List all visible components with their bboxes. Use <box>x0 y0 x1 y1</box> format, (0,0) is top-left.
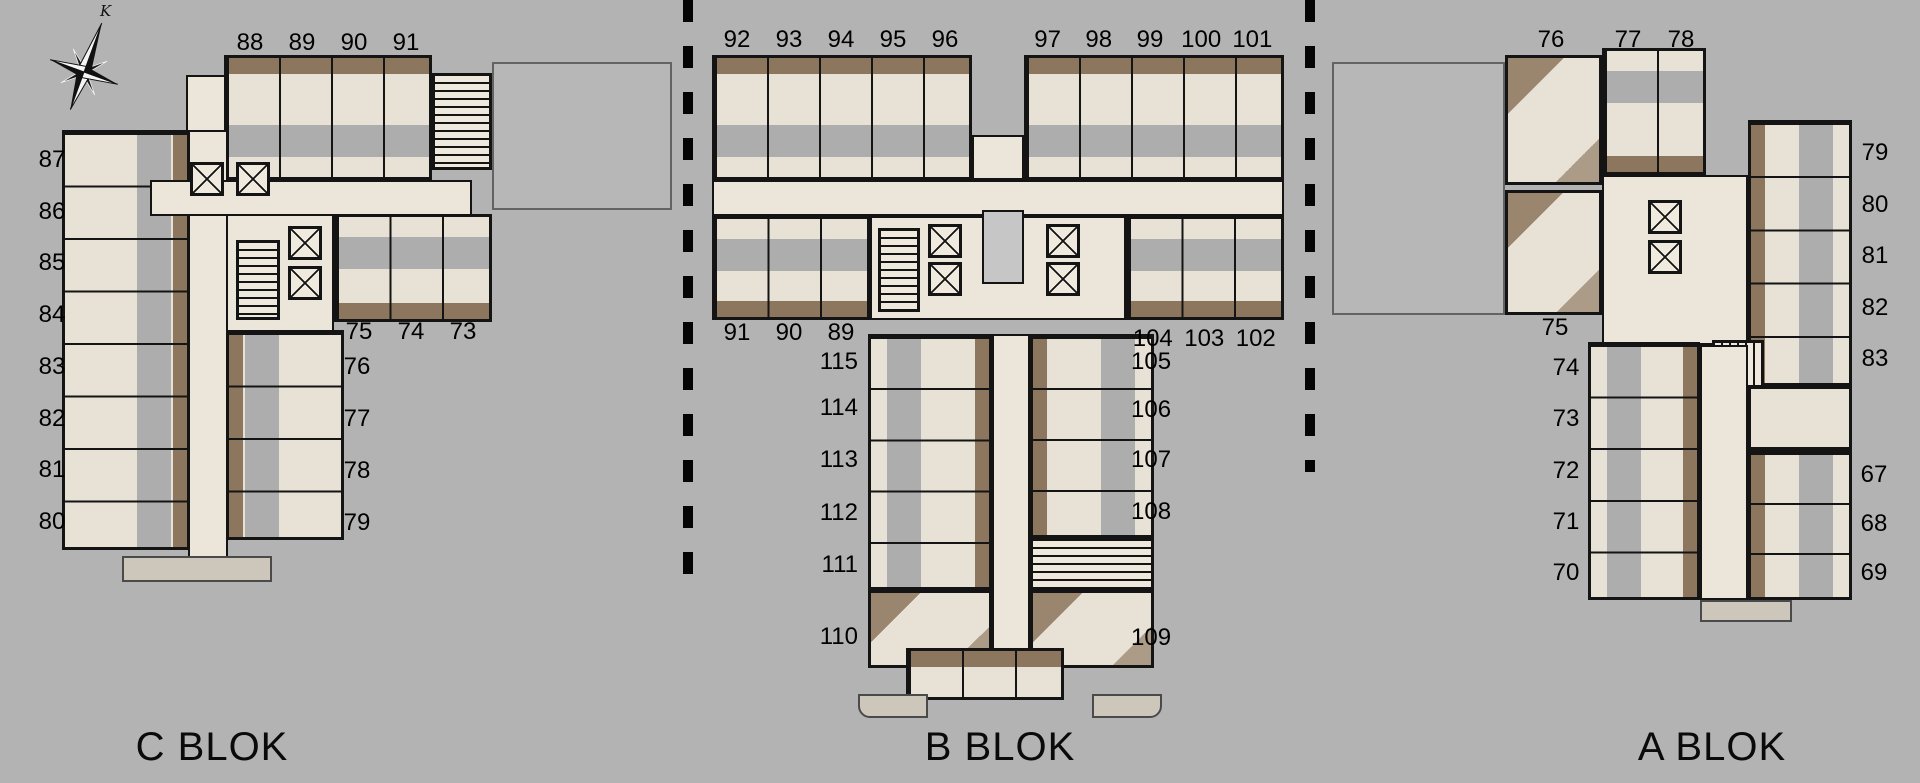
room-number-label: 109 <box>1131 623 1191 653</box>
room-number-label: 89 <box>276 28 328 58</box>
a-blok-left-room-numbers: 7473727170 <box>1542 353 1590 588</box>
room-number-label: 78 <box>333 456 381 486</box>
c-right-rooms <box>226 330 344 540</box>
room-number-label: 73 <box>1542 404 1590 434</box>
b-shaft-void <box>982 210 1024 284</box>
room-number-label: 98 <box>1073 25 1124 55</box>
b-blok-stem-right-room-numbers: 105106107108109 <box>1131 347 1191 653</box>
room-number-label: 107 <box>1131 445 1191 475</box>
c-balcony <box>122 556 272 582</box>
b-balcony-right <box>1092 694 1162 718</box>
a-right-lower-rooms <box>1748 450 1852 600</box>
block-separator-left <box>683 0 693 578</box>
room-number-label: 81 <box>28 455 76 485</box>
a-empty-parcel <box>1332 62 1505 315</box>
compass-rose-icon: K <box>24 0 144 130</box>
c-elevator-4-icon <box>288 266 322 300</box>
a-suite-76 <box>1505 55 1602 185</box>
room-number-label: 91 <box>380 28 432 58</box>
room-number-label: 108 <box>1131 497 1191 527</box>
b-stem-corridor <box>992 334 1030 668</box>
b-elevator-3-icon <box>1046 224 1080 258</box>
c-elevator-2-icon <box>236 162 270 196</box>
room-number-label: 71 <box>1542 507 1590 537</box>
room-number-label: 97 <box>1022 25 1073 55</box>
room-number-label: 96 <box>919 25 971 55</box>
b-annex-rooms <box>906 648 1064 700</box>
a-corridor-vertical <box>1700 345 1748 600</box>
room-number-label: 90 <box>763 318 815 348</box>
room-number-label: 106 <box>1131 395 1191 425</box>
a-top-rooms <box>1602 48 1706 175</box>
room-number-label: 114 <box>802 393 858 423</box>
a-blok-right-lower-room-numbers: 676869 <box>1850 460 1898 588</box>
c-blok-inner-room-numbers: 757473 <box>333 317 489 347</box>
block-separator-right <box>1305 0 1315 472</box>
room-number-label: 91 <box>711 318 763 348</box>
room-number-label: 102 <box>1230 324 1282 354</box>
room-number-label: 85 <box>28 248 76 278</box>
room-number-label: 82 <box>1851 293 1899 323</box>
a-blok-top-room-numbers: 767778 <box>1525 25 1707 55</box>
room-number-label: 75 <box>333 317 385 347</box>
b-blok-top-right-room-numbers: 979899100101 <box>1022 25 1278 55</box>
room-number-label: 79 <box>1851 138 1899 168</box>
b-blok-stem-left-room-numbers: 115114113112111110 <box>802 347 858 652</box>
c-stairwell-core <box>236 240 280 320</box>
a-elevator-1-icon <box>1648 200 1682 234</box>
c-blok-top-room-numbers: 88899091 <box>224 28 432 58</box>
room-number-label: 82 <box>28 404 76 434</box>
a-elevator-2-icon <box>1648 240 1682 274</box>
room-number-label: 110 <box>802 622 858 652</box>
b-elevator-4-icon <box>1046 262 1080 296</box>
room-number-label: 105 <box>1131 347 1191 377</box>
b-elevator-1-icon <box>928 224 962 258</box>
b-mid-left-rooms <box>712 216 870 320</box>
a-blok-right-upper-room-numbers: 7980818283 <box>1851 138 1899 374</box>
floor-plan-canvas: K 88899091 8786858483828180 757473 76777… <box>0 0 1920 783</box>
a-suite-75 <box>1505 190 1602 315</box>
room-number-label: 92 <box>711 25 763 55</box>
room-number-label: 67 <box>1850 460 1898 490</box>
room-number-label: 74 <box>385 317 437 347</box>
room-number-label: 83 <box>1851 344 1899 374</box>
b-mid-right-rooms <box>1126 216 1284 320</box>
room-number-label: 101 <box>1227 25 1278 55</box>
c-blok-right-room-numbers: 76777879 <box>333 352 381 538</box>
c-elevator-3-icon <box>288 226 322 260</box>
room-number-label: 115 <box>802 347 858 377</box>
b-blok-mid-left-room-numbers: 919089 <box>711 318 867 348</box>
room-number-label: 87 <box>28 145 76 175</box>
room-number-label: 69 <box>1850 558 1898 588</box>
room-number-label: 79 <box>333 508 381 538</box>
c-empty-parcel <box>492 62 672 210</box>
room-number-label: 100 <box>1176 25 1227 55</box>
room-number-label: 77 <box>333 404 381 434</box>
c-blok-label: C BLOK <box>92 724 332 770</box>
room-number-label: 88 <box>224 28 276 58</box>
b-balcony-left <box>858 694 928 718</box>
room-number-label: 74 <box>1542 353 1590 383</box>
room-number-label: 75 <box>1530 313 1580 343</box>
room-number-label: 93 <box>763 25 815 55</box>
c-stairwell-top <box>432 73 492 170</box>
room-number-label: 68 <box>1850 509 1898 539</box>
room-number-label: 77 <box>1602 25 1654 55</box>
b-stairwell-core <box>878 228 920 312</box>
room-number-label: 72 <box>1542 456 1590 486</box>
compass-north-letter: K <box>99 2 112 20</box>
room-number-label: 80 <box>1851 190 1899 220</box>
b-stem-left-rooms <box>868 334 992 590</box>
a-blok-room-75-number: 75 <box>1530 313 1580 343</box>
room-number-label: 76 <box>1525 25 1577 55</box>
room-number-label: 84 <box>28 300 76 330</box>
room-number-label: 76 <box>333 352 381 382</box>
a-right-mid-room <box>1748 386 1852 450</box>
room-number-label: 83 <box>28 352 76 382</box>
a-balcony <box>1700 600 1792 622</box>
room-number-label: 78 <box>1655 25 1707 55</box>
room-number-label: 113 <box>802 445 858 475</box>
room-number-label: 80 <box>28 507 76 537</box>
b-blok-label: B BLOK <box>880 724 1120 770</box>
room-number-label: 99 <box>1124 25 1175 55</box>
c-blok-left-room-numbers: 8786858483828180 <box>28 145 76 537</box>
room-number-label: 89 <box>815 318 867 348</box>
room-number-label: 73 <box>437 317 489 347</box>
room-number-label: 94 <box>815 25 867 55</box>
room-number-label: 95 <box>867 25 919 55</box>
a-left-rooms <box>1588 342 1700 600</box>
room-number-label: 86 <box>28 197 76 227</box>
room-number-label: 111 <box>802 550 858 580</box>
b-top-right-rooms <box>1024 55 1284 180</box>
b-elevator-2-icon <box>928 262 962 296</box>
c-inner-rooms <box>334 214 492 322</box>
room-number-label: 90 <box>328 28 380 58</box>
c-elevator-1-icon <box>190 162 224 196</box>
b-blok-top-left-room-numbers: 9293949596 <box>711 25 971 55</box>
room-number-label: 112 <box>802 498 858 528</box>
room-number-label: 81 <box>1851 241 1899 271</box>
b-top-notch <box>972 135 1024 180</box>
b-top-left-rooms <box>712 55 972 180</box>
room-number-label: 70 <box>1542 558 1590 588</box>
a-blok-label: A BLOK <box>1592 724 1832 770</box>
